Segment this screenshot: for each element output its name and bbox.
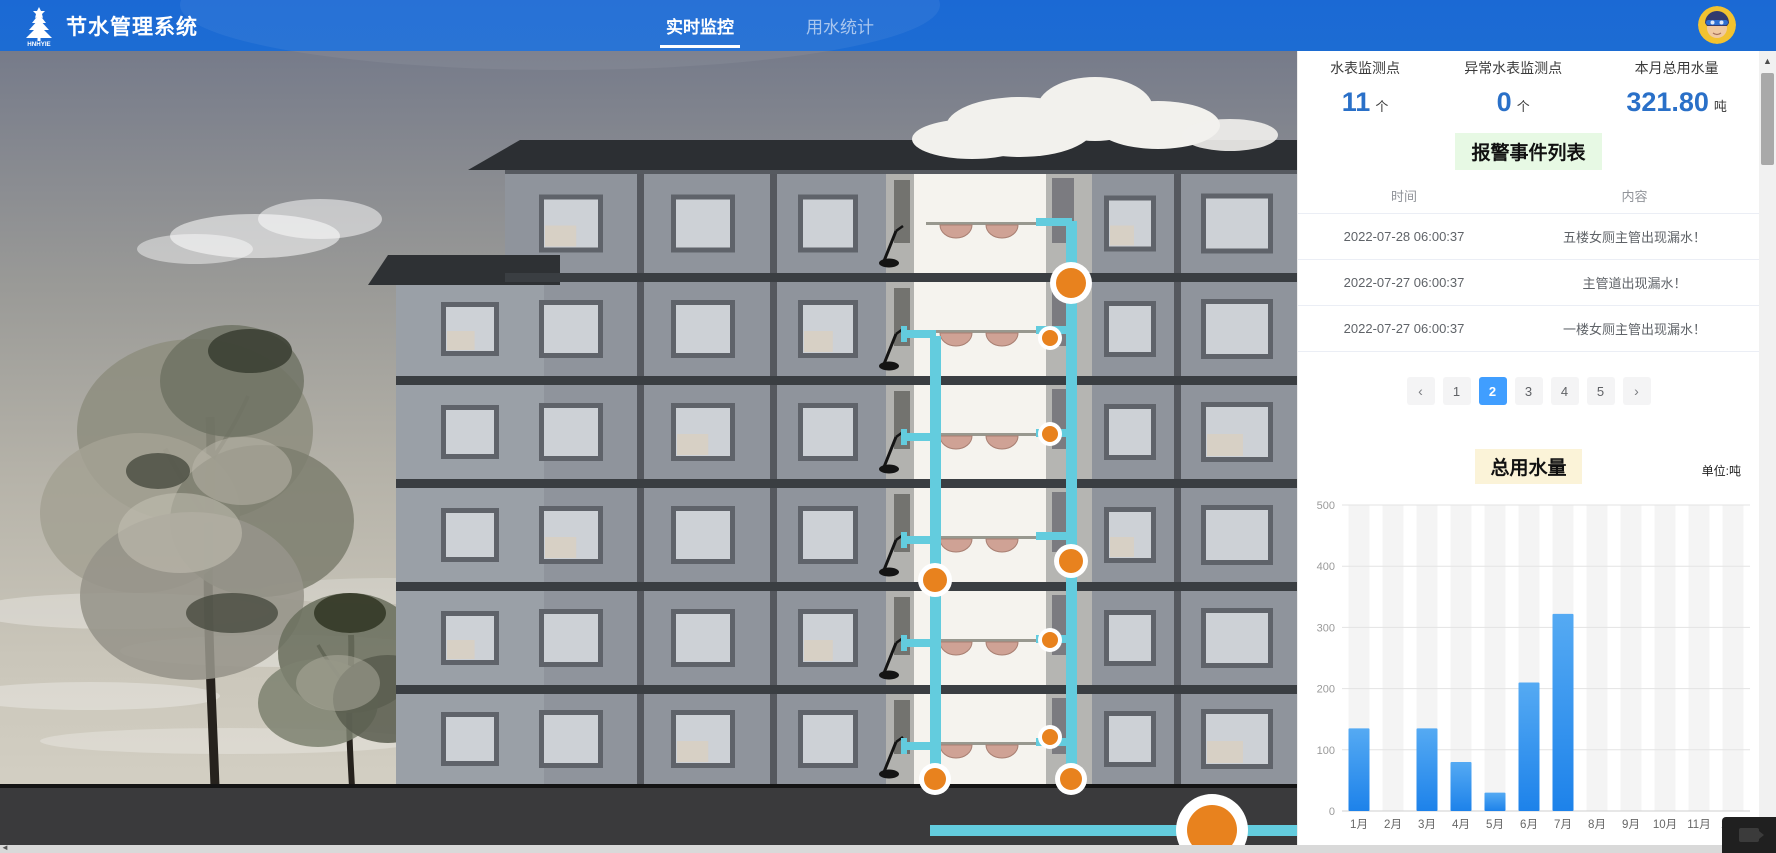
y-tick-label: 100 xyxy=(1317,745,1335,757)
alarm-col-content: 内容 xyxy=(1510,179,1759,213)
window xyxy=(539,300,603,358)
alarm-table: 时间 内容 2022-07-28 06:00:37五楼女厕主管出现漏水！2022… xyxy=(1298,179,1759,352)
app-title: 节水管理系统 xyxy=(66,11,198,41)
window xyxy=(1104,610,1156,666)
scroll-up-arrow-icon[interactable]: ▲ xyxy=(1759,53,1776,69)
top-nav: HNHYIE 节水管理系统 实时监控 用水统计 xyxy=(0,0,1776,51)
stat-unit: 个 xyxy=(1375,99,1388,114)
window xyxy=(441,302,499,356)
chart-band xyxy=(1723,505,1744,811)
window xyxy=(798,403,858,461)
floor-separator xyxy=(505,376,1297,385)
window xyxy=(1201,505,1273,565)
main-riser-pipe xyxy=(1066,221,1077,833)
stats-row: 水表监测点 11个 异常水表监测点 0个 本月总用水量 321.80吨 xyxy=(1298,53,1759,118)
pagination-prev-button[interactable]: ‹ xyxy=(1407,377,1435,405)
bar-7月[interactable] xyxy=(1553,614,1574,811)
window xyxy=(671,506,735,564)
alarm-col-time: 时间 xyxy=(1298,179,1510,213)
water-meter-point[interactable] xyxy=(1038,422,1062,446)
x-tick-label: 11月 xyxy=(1687,819,1710,831)
nav-tabs: 实时监控 用水统计 xyxy=(660,0,880,51)
building-illustration xyxy=(0,51,1297,845)
stat-meter-points: 水表监测点 11个 xyxy=(1330,53,1400,118)
water-meter-point[interactable] xyxy=(1050,262,1092,304)
window xyxy=(671,609,735,667)
chart-band xyxy=(1689,505,1710,811)
scroll-left-arrow-icon[interactable]: ◄ xyxy=(1,843,9,852)
stat-label: 本月总用水量 xyxy=(1626,58,1727,78)
pagination: ‹12345› xyxy=(1298,377,1759,405)
alarm-time: 2022-07-27 06:00:37 xyxy=(1298,305,1510,351)
window xyxy=(798,506,858,564)
window xyxy=(539,710,603,768)
app-root: HNHYIE 节水管理系统 实时监控 用水统计 xyxy=(0,0,1776,853)
avatar-icon xyxy=(1698,6,1736,44)
alarm-table-row[interactable]: 2022-07-27 06:00:37主管道出现漏水！ xyxy=(1298,259,1759,305)
water-meter-point[interactable] xyxy=(1054,544,1088,578)
alarm-content: 五楼女厕主管出现漏水！ xyxy=(1510,213,1759,259)
chart-band xyxy=(1485,505,1506,811)
window xyxy=(1201,402,1273,462)
water-meter-point[interactable] xyxy=(1038,628,1062,652)
bar-1月[interactable] xyxy=(1349,728,1370,811)
window xyxy=(1201,709,1273,769)
window xyxy=(671,710,735,768)
water-meter-point[interactable] xyxy=(1055,763,1087,795)
y-tick-label: 500 xyxy=(1317,500,1335,512)
pine-tree-logo-icon: HNHYIE xyxy=(22,6,56,46)
window xyxy=(441,712,499,766)
alarm-content: 一楼女厕主管出现漏水！ xyxy=(1510,305,1759,351)
x-tick-label: 9月 xyxy=(1622,819,1640,831)
floor-separator xyxy=(505,479,1297,488)
y-tick-label: 0 xyxy=(1329,806,1335,818)
window xyxy=(539,403,603,461)
y-tick-label: 300 xyxy=(1317,622,1335,634)
x-tick-label: 2月 xyxy=(1384,819,1402,831)
x-tick-label: 4月 xyxy=(1452,819,1470,831)
alarm-time: 2022-07-28 06:00:37 xyxy=(1298,213,1510,259)
bar-3月[interactable] xyxy=(1417,728,1438,811)
chart-band xyxy=(1383,505,1404,811)
building-monitor-scene xyxy=(0,51,1297,845)
ground xyxy=(0,788,1297,845)
pagination-page-4[interactable]: 4 xyxy=(1551,377,1579,405)
window xyxy=(1104,196,1156,252)
vertical-scrollbar[interactable]: ▲ xyxy=(1759,51,1776,845)
window xyxy=(441,611,499,665)
water-meter-point[interactable] xyxy=(1038,725,1062,749)
water-meter-point[interactable] xyxy=(918,563,952,597)
bar-5月[interactable] xyxy=(1485,793,1506,811)
stat-monthly-usage: 本月总用水量 321.80吨 xyxy=(1626,53,1727,118)
stat-label: 水表监测点 xyxy=(1330,58,1400,78)
alarm-table-row[interactable]: 2022-07-27 06:00:37一楼女厕主管出现漏水！ xyxy=(1298,305,1759,351)
brand: HNHYIE 节水管理系统 xyxy=(22,6,198,46)
svg-text:HNHYIE: HNHYIE xyxy=(27,41,50,46)
window xyxy=(539,195,603,253)
ground-line xyxy=(0,784,1297,788)
x-tick-label: 1月 xyxy=(1350,819,1368,831)
chart-title: 总用水量 xyxy=(1475,449,1581,484)
stat-unit: 吨 xyxy=(1714,99,1727,114)
x-tick-label: 10月 xyxy=(1653,819,1677,831)
alarm-list-title: 报警事件列表 xyxy=(1455,133,1601,170)
stat-abnormal-points: 异常水表监测点 0个 xyxy=(1464,53,1562,118)
window xyxy=(1201,194,1273,254)
x-tick-label: 3月 xyxy=(1418,819,1436,831)
window xyxy=(671,300,735,358)
window xyxy=(539,506,603,564)
x-tick-label: 7月 xyxy=(1554,819,1572,831)
window xyxy=(441,405,499,459)
pagination-page-1[interactable]: 1 xyxy=(1443,377,1471,405)
alarm-time: 2022-07-27 06:00:37 xyxy=(1298,259,1510,305)
x-tick-label: 8月 xyxy=(1588,819,1606,831)
water-meter-point[interactable] xyxy=(919,763,951,795)
window xyxy=(1104,301,1156,357)
window xyxy=(798,710,858,768)
chart-band xyxy=(1655,505,1676,811)
floating-video-widget[interactable] xyxy=(1722,817,1776,853)
usage-bar-chart: 01002003004005001月2月3月4月5月6月7月8月9月10月11月… xyxy=(1302,495,1756,847)
chart-unit-label: 单位:吨 xyxy=(1702,462,1741,479)
building xyxy=(368,140,1297,787)
pagination-next-button[interactable]: › xyxy=(1623,377,1651,405)
vertical-scroll-thumb[interactable] xyxy=(1761,73,1774,165)
pagination-page-5[interactable]: 5 xyxy=(1587,377,1615,405)
pagination-page-2[interactable]: 2 xyxy=(1479,377,1507,405)
tab-realtime-monitor[interactable]: 实时监控 xyxy=(660,0,740,51)
x-tick-label: 6月 xyxy=(1520,819,1538,831)
window xyxy=(798,195,858,253)
stat-unit: 个 xyxy=(1517,99,1530,114)
stat-label: 异常水表监测点 xyxy=(1464,58,1562,78)
user-avatar[interactable] xyxy=(1698,6,1736,44)
window xyxy=(1201,299,1273,359)
window xyxy=(441,508,499,562)
stat-value: 321.80 xyxy=(1626,87,1709,117)
stat-value: 11 xyxy=(1342,87,1371,117)
y-tick-label: 400 xyxy=(1317,561,1335,573)
horizontal-scrollbar[interactable]: ◄ xyxy=(0,845,1759,853)
video-camera-icon xyxy=(1739,828,1759,842)
chart-header: 总用水量 单位:吨 xyxy=(1298,449,1759,484)
window xyxy=(539,609,603,667)
window xyxy=(1104,404,1156,460)
alarm-content: 主管道出现漏水！ xyxy=(1510,259,1759,305)
window xyxy=(671,195,735,253)
right-panel: 水表监测点 11个 异常水表监测点 0个 本月总用水量 321.80吨 报警事件… xyxy=(1297,51,1759,845)
window xyxy=(1201,608,1273,668)
window xyxy=(798,609,858,667)
x-tick-label: 5月 xyxy=(1486,819,1504,831)
chart-band xyxy=(1621,505,1642,811)
y-tick-label: 200 xyxy=(1317,684,1335,696)
alarm-table-row[interactable]: 2022-07-28 06:00:37五楼女厕主管出现漏水！ xyxy=(1298,213,1759,259)
floor-separator xyxy=(505,685,1297,694)
window xyxy=(1104,507,1156,563)
tab-water-statistics[interactable]: 用水统计 xyxy=(800,0,880,51)
pagination-page-3[interactable]: 3 xyxy=(1515,377,1543,405)
alarm-list-header: 报警事件列表 xyxy=(1298,133,1759,170)
window xyxy=(1104,711,1156,767)
bar-6月[interactable] xyxy=(1519,682,1540,811)
floor-separator xyxy=(505,582,1297,591)
chart-band xyxy=(1587,505,1608,811)
stat-value: 0 xyxy=(1497,87,1512,117)
window xyxy=(671,403,735,461)
window xyxy=(798,300,858,358)
bar-4月[interactable] xyxy=(1451,762,1472,811)
floor-separator xyxy=(505,273,1297,282)
water-meter-point[interactable] xyxy=(1038,326,1062,350)
